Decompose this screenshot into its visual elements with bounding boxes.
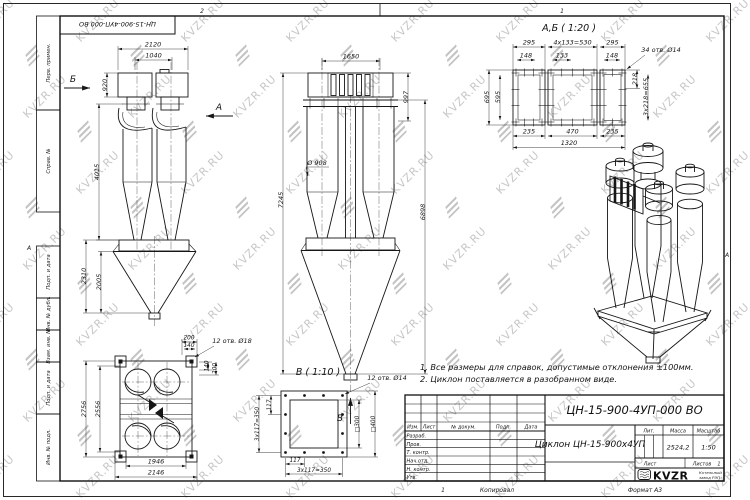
- drawing-sheet: { "watermark": { "text": "KVZR.RU" }, "f…: [0, 0, 750, 500]
- dim-side-width: 2120: [145, 41, 162, 49]
- note-line: 1. Все размеры для справок, допустимые о…: [420, 362, 693, 372]
- tb-row-label: Разраб.: [407, 434, 427, 440]
- title-block: Изм. Лист № докум. Подп. Дата Разраб. Пр…: [405, 395, 724, 483]
- stamp-text: ЦН-15-900-4УП-000 ВО: [79, 20, 156, 28]
- dim-front-outlet-height: 997: [402, 90, 410, 103]
- dim-plan: 200: [183, 336, 194, 342]
- tb-sheets-label: Листов: [692, 462, 712, 468]
- dim-side-width-inner: 1040: [145, 52, 162, 60]
- dim-ab: 470: [566, 128, 578, 136]
- tb-scale-value: 1:50: [701, 444, 716, 452]
- zone-number-2: 2: [200, 8, 204, 15]
- notes: 1. Все размеры для справок, допустимые о…: [420, 362, 693, 384]
- dim-hopper-height: 2310: [80, 268, 88, 285]
- detail-v-view: В ( 1:10 ) 12 отв. Ø14 117 3x117=350 117…: [255, 367, 407, 477]
- dim-plan: 2146: [148, 469, 165, 477]
- dim-plan: 140: [205, 360, 211, 371]
- tb-row-label: Пров.: [407, 442, 422, 448]
- detail-ab-view: А,Б ( 1:20 ) 295 4x133=530 295 148 133 1…: [483, 23, 681, 150]
- frame-label: Справ. №: [46, 148, 52, 173]
- tb-col-date: Дата: [524, 425, 538, 431]
- dim-v: □300: [355, 415, 361, 432]
- dim-ab: 1320: [561, 139, 578, 147]
- rotated-designation-stamp: ЦН-15-900-4УП-000 ВО: [60, 16, 175, 34]
- dim-plan: 2756: [80, 401, 88, 418]
- dim-v: 3x117=350: [297, 468, 331, 474]
- dim-ab: 295: [606, 39, 618, 47]
- arrow-label-b: Б: [70, 75, 76, 85]
- dim-front-right-height: 6898: [419, 204, 427, 221]
- tb-doc-name: Циклон ЦН-15-900х4УП: [535, 440, 646, 450]
- side-view: 2120 1040 920 4015 2310 2005 Б А: [64, 41, 233, 327]
- note-line: 2. Циклон поставляется в разобранном вид…: [420, 374, 617, 384]
- dim-plan: 2556: [94, 401, 102, 418]
- dim-ab-holes: 34 отв. Ø14: [641, 46, 680, 54]
- dim-ab: 3x218=655: [642, 78, 650, 116]
- frame-label: Подп. и дата: [46, 370, 52, 405]
- dim-hopper-height-inner: 2005: [95, 274, 103, 291]
- detail-ab-title: А,Б ( 1:20 ): [541, 23, 596, 34]
- frame-label: Перв. примен.: [46, 44, 52, 83]
- tb-scale-label: Масштаб: [697, 429, 721, 435]
- cyclone-3d: [676, 164, 704, 312]
- tb-row-label: Н. контр.: [407, 467, 431, 473]
- tb-lit-label: Лит.: [642, 429, 655, 435]
- dim-side-body-height: 4015: [93, 164, 101, 181]
- tb-sheet-label: Лист: [643, 462, 658, 468]
- tb-col-doc: № докум.: [450, 425, 476, 431]
- zone-number-1: 1: [560, 8, 564, 15]
- bolt-ticks: [512, 69, 627, 127]
- dim-ab: 295: [523, 39, 535, 47]
- dim-diameter: Ø 908: [306, 159, 327, 167]
- flange-holes: [284, 394, 344, 454]
- tb-row-label: Утв.: [407, 475, 418, 481]
- dim-front-width: 1650: [343, 53, 360, 61]
- frame-left-column: Перв. примен. Справ. № Подп. и дата Инв.…: [37, 16, 61, 481]
- dim-plan: 200: [213, 363, 219, 374]
- dim-ab: 235: [523, 128, 535, 136]
- tb-col-list: Лист: [422, 425, 437, 431]
- dim-plan: 140: [183, 343, 194, 349]
- frame-label: Инв. № подл.: [46, 429, 52, 465]
- bottom-num: 1: [441, 487, 445, 494]
- dim-side-inlet-height: 920: [101, 79, 109, 91]
- cyclone-3d: [633, 143, 663, 298]
- detail-v-title: В ( 1:10 ): [296, 367, 340, 378]
- tb-col-sign: Подп.: [496, 425, 511, 431]
- dim-plan: 1946: [148, 458, 165, 466]
- copied-label: Копировал: [480, 487, 514, 494]
- arrow-label-a: А: [215, 103, 222, 113]
- dim-v: 3x117=350: [255, 407, 261, 441]
- tb-row-label: Нач.отд.: [407, 459, 429, 465]
- isometric-view: [594, 143, 711, 363]
- dim-front-total-height: 7245: [277, 192, 285, 209]
- tb-mass-value: 2524,2: [667, 444, 690, 452]
- dim-v: □400: [371, 415, 377, 432]
- zone-letter-right: А: [724, 252, 729, 259]
- dim-ab: 595: [494, 91, 502, 103]
- kvzr-logo-text: KVZR: [653, 470, 689, 483]
- drawing-canvas: 2 1 А А Перв. примен. Справ. № Подп. и д…: [0, 0, 750, 500]
- tb-sheets-value: 1: [717, 462, 720, 468]
- tb-mass-label: Масса: [670, 429, 686, 435]
- format-label: Формат А3: [628, 487, 662, 494]
- dim-ab: 148: [520, 52, 532, 60]
- dim-ab: 695: [483, 91, 491, 103]
- frame-label: Взам. инв. №: [46, 328, 52, 363]
- dim-v-holes: 12 отв. Ø14: [367, 374, 406, 382]
- dim-ab: 218: [631, 73, 639, 85]
- inlet-manifold-3d: [610, 176, 660, 214]
- tb-col-izm: Изм.: [407, 425, 419, 431]
- dim-ab: 133: [556, 52, 568, 60]
- zone-letter-left: А: [26, 245, 31, 252]
- tb-row-label: Т. контр.: [407, 450, 430, 456]
- frame-label: Подп. и дата: [46, 254, 52, 289]
- dim-ab: 235: [606, 128, 618, 136]
- dim-v: 117: [289, 458, 300, 464]
- tb-designation: ЦН-15-900-4УП-000 ВО: [566, 403, 702, 417]
- frame-label: Инв. № дубл.: [46, 296, 52, 332]
- dim-ab: 148: [606, 52, 618, 60]
- dim-v: 117: [267, 399, 273, 410]
- kvzr-logo-subtext: завод РЭП: [699, 475, 720, 480]
- dim-ab: 4x133=530: [553, 39, 591, 47]
- dim-plan-holes: 12 отв. Ø18: [212, 337, 251, 345]
- plan-view: 200 140 12 отв. Ø18 140 200 2756 2556 19…: [80, 336, 252, 481]
